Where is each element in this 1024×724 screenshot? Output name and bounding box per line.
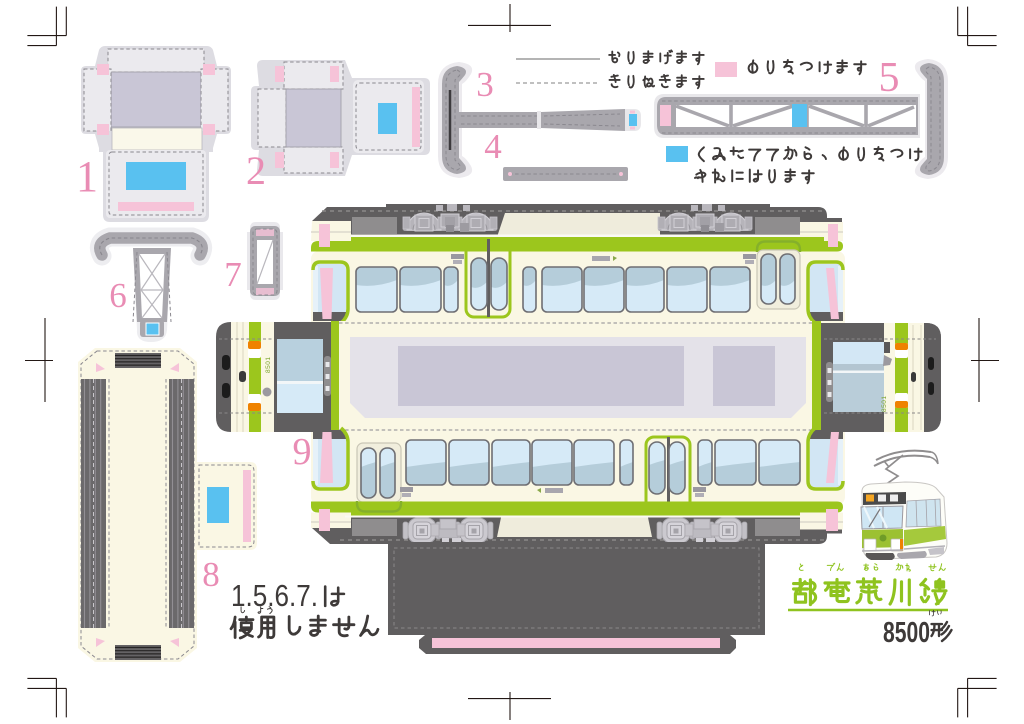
svg-text:3: 3 [476, 65, 494, 104]
svg-text:1.5.6.7.: 1.5.6.7. [231, 578, 318, 613]
svg-text:8501: 8501 [265, 357, 272, 373]
svg-text:6: 6 [109, 276, 127, 315]
svg-text:9: 9 [293, 431, 312, 473]
svg-text:4: 4 [484, 127, 502, 166]
svg-text:1: 1 [76, 152, 98, 201]
svg-text:2: 2 [246, 148, 266, 193]
svg-text:8: 8 [202, 555, 220, 594]
svg-text:7: 7 [224, 255, 242, 294]
svg-text:5: 5 [879, 55, 900, 101]
svg-text:8500: 8500 [883, 617, 930, 649]
svg-text:8501: 8501 [881, 396, 888, 412]
